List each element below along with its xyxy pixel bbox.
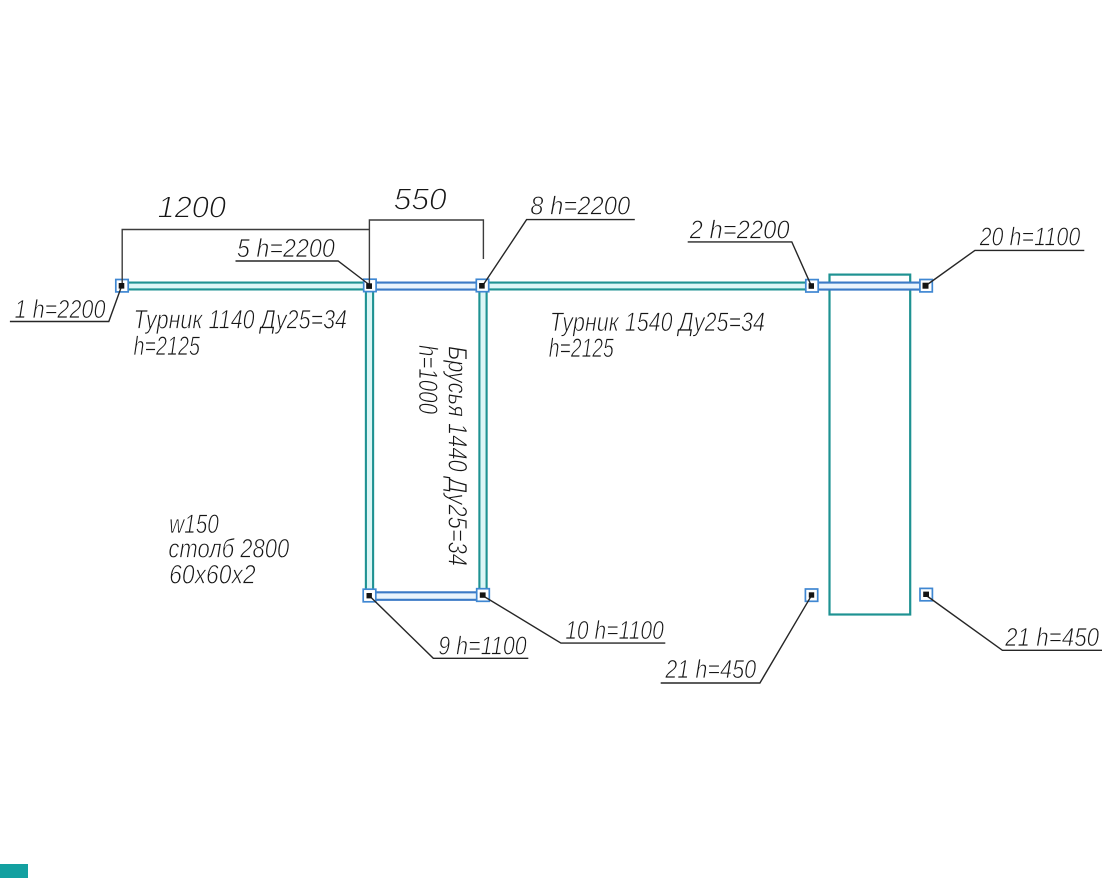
svg-text:10 h=1100: 10 h=1100 — [565, 615, 664, 645]
svg-text:1200: 1200 — [158, 190, 227, 225]
svg-text:h=2125: h=2125 — [549, 333, 615, 363]
svg-text:Брусья 1440 Ду25=34: Брусья 1440 Ду25=34 — [443, 346, 473, 566]
svg-text:8 h=2200: 8 h=2200 — [530, 191, 630, 221]
svg-text:h=2125: h=2125 — [134, 331, 201, 361]
svg-text:21 h=450: 21 h=450 — [664, 654, 756, 684]
svg-text:2 h=2200: 2 h=2200 — [689, 214, 790, 244]
svg-text:h=1000: h=1000 — [413, 345, 443, 414]
svg-text:9 h=1100: 9 h=1100 — [438, 631, 527, 661]
svg-text:21 h=450: 21 h=450 — [1004, 622, 1099, 652]
svg-text:1 h=2200: 1 h=2200 — [15, 294, 106, 324]
svg-text:550: 550 — [394, 182, 447, 217]
svg-text:60x60x2: 60x60x2 — [169, 560, 256, 590]
svg-text:5 h=2200: 5 h=2200 — [237, 233, 335, 263]
svg-text:20 h=1100: 20 h=1100 — [979, 222, 1081, 252]
